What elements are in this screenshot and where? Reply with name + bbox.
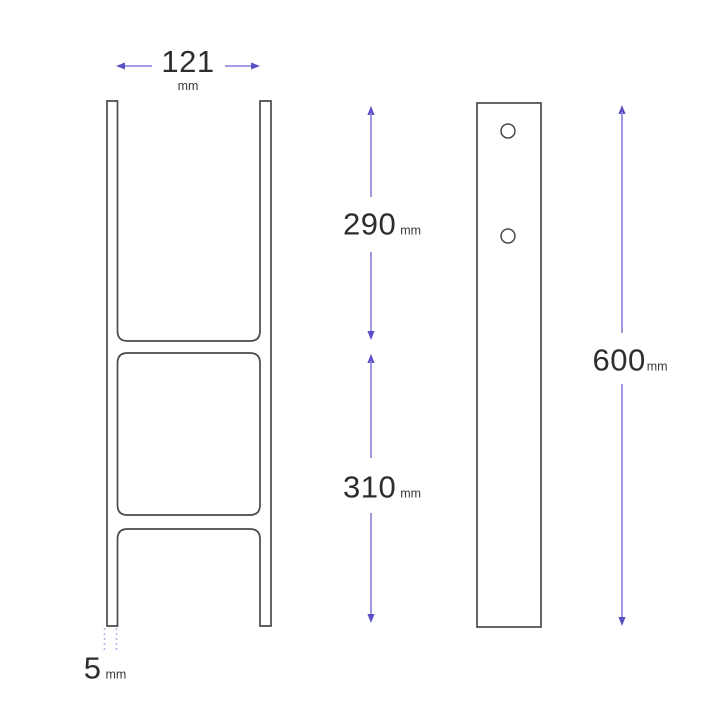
upper-arrow-bottom-head (367, 331, 374, 340)
hole-bottom (501, 229, 515, 243)
width-arrow-left-head (116, 63, 125, 70)
upper-value: 290 (343, 209, 396, 240)
width-dimension-label: 121 mm (161, 46, 214, 93)
front-view (107, 101, 271, 626)
upper-unit: mm (400, 225, 421, 238)
lower-value: 310 (343, 472, 396, 503)
front-view-outline (107, 101, 271, 626)
height-arrow-bottom-head (618, 617, 625, 626)
lower-unit: mm (400, 488, 421, 501)
height-value: 600 (592, 345, 645, 376)
lower-dimension-label: 310 mm (343, 472, 421, 503)
width-unit: mm (178, 80, 199, 93)
side-view-plate (477, 103, 541, 627)
width-value: 121 (161, 46, 214, 77)
height-unit: mm (647, 361, 668, 374)
thickness-unit: mm (105, 669, 126, 682)
thickness-extension-lines (105, 628, 117, 653)
upper-dimension-label: 290 mm (343, 209, 421, 240)
height-dimension-label: 600 mm (592, 345, 667, 376)
side-view (477, 103, 541, 627)
width-arrow-right-head (251, 63, 260, 70)
hole-top (501, 124, 515, 138)
thickness-value: 5 (84, 653, 102, 684)
lower-arrow-bottom-head (367, 614, 374, 623)
technical-drawing-canvas: 121 mm 290 mm 310 mm 600 mm 5 mm (0, 0, 720, 720)
thickness-dimension-label: 5 mm (84, 653, 127, 684)
